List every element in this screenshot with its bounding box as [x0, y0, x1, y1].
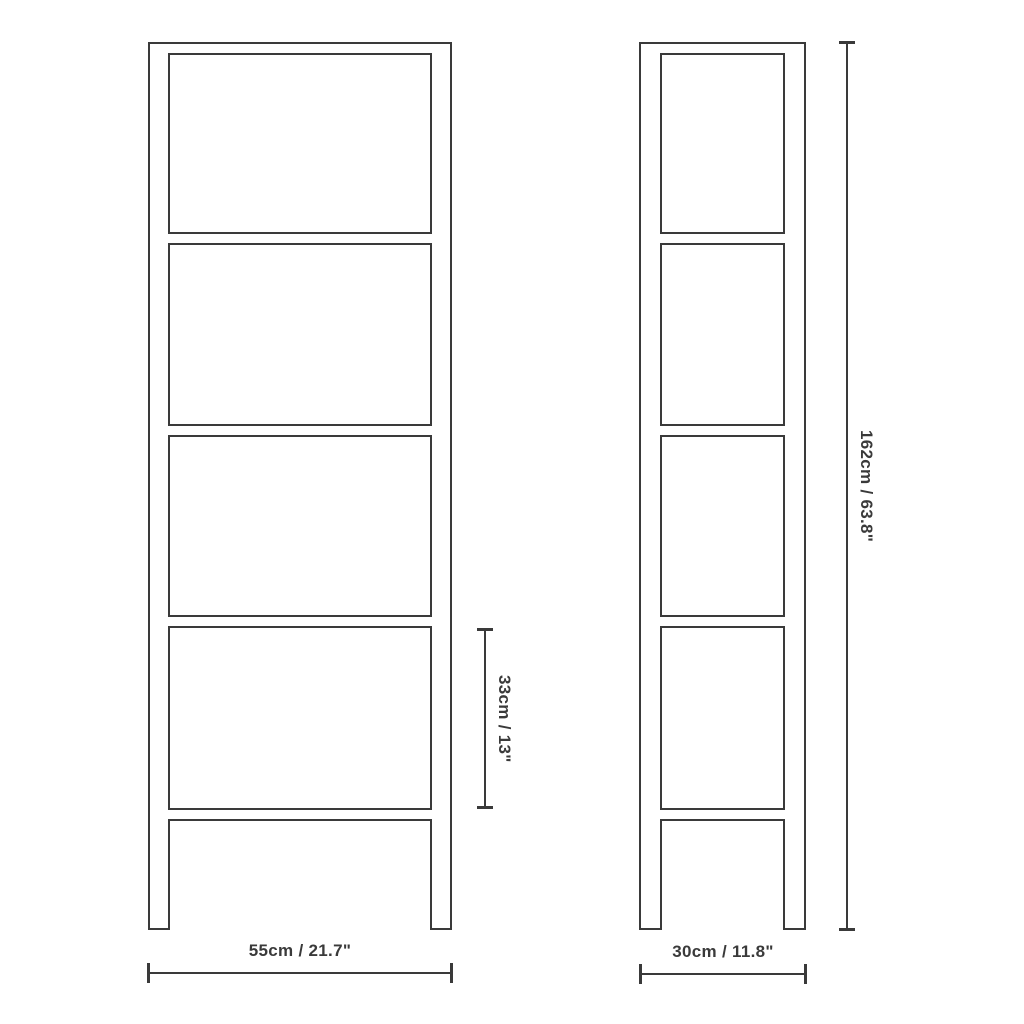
width-dimension-label: 55cm / 21.7": [148, 941, 452, 961]
height-dimension-label: 162cm / 63.8": [856, 42, 876, 930]
depth-dimension-label: 30cm / 11.8": [640, 942, 806, 962]
side-shelf-3: [660, 424, 785, 437]
width-dimension-cap-right: [450, 963, 453, 983]
width-dimension-line: [148, 972, 452, 974]
shelf-spacing-dimension-label: 33cm / 13": [494, 629, 514, 808]
side-right-leg: [783, 42, 806, 930]
height-dimension-line: [846, 42, 848, 930]
shelf-spacing-dimension-line: [484, 629, 486, 808]
shelf-spacing-cap-top: [477, 628, 493, 631]
shelf-spacing-cap-bottom: [477, 806, 493, 809]
front-right-leg: [430, 42, 452, 930]
side-shelf-4: [660, 615, 785, 628]
side-shelf-2: [660, 232, 785, 245]
dimension-diagram: 55cm / 21.7" 30cm / 11.8" 162cm / 63.8" …: [0, 0, 1024, 1024]
front-shelf-5: [168, 808, 432, 821]
depth-dimension-line: [640, 973, 806, 975]
depth-dimension-cap-left: [639, 964, 642, 984]
side-shelf-1: [660, 42, 785, 55]
front-view: [148, 42, 452, 930]
side-left-leg: [639, 42, 662, 930]
front-shelf-3: [168, 424, 432, 437]
height-dimension-cap-bottom: [839, 928, 855, 931]
front-shelf-1: [168, 42, 432, 55]
height-dimension-cap-top: [839, 41, 855, 44]
front-left-leg: [148, 42, 170, 930]
side-shelf-5: [660, 808, 785, 821]
depth-dimension-cap-right: [804, 964, 807, 984]
front-shelf-2: [168, 232, 432, 245]
width-dimension-cap-left: [147, 963, 150, 983]
side-view: [639, 42, 806, 930]
front-shelf-4: [168, 615, 432, 628]
